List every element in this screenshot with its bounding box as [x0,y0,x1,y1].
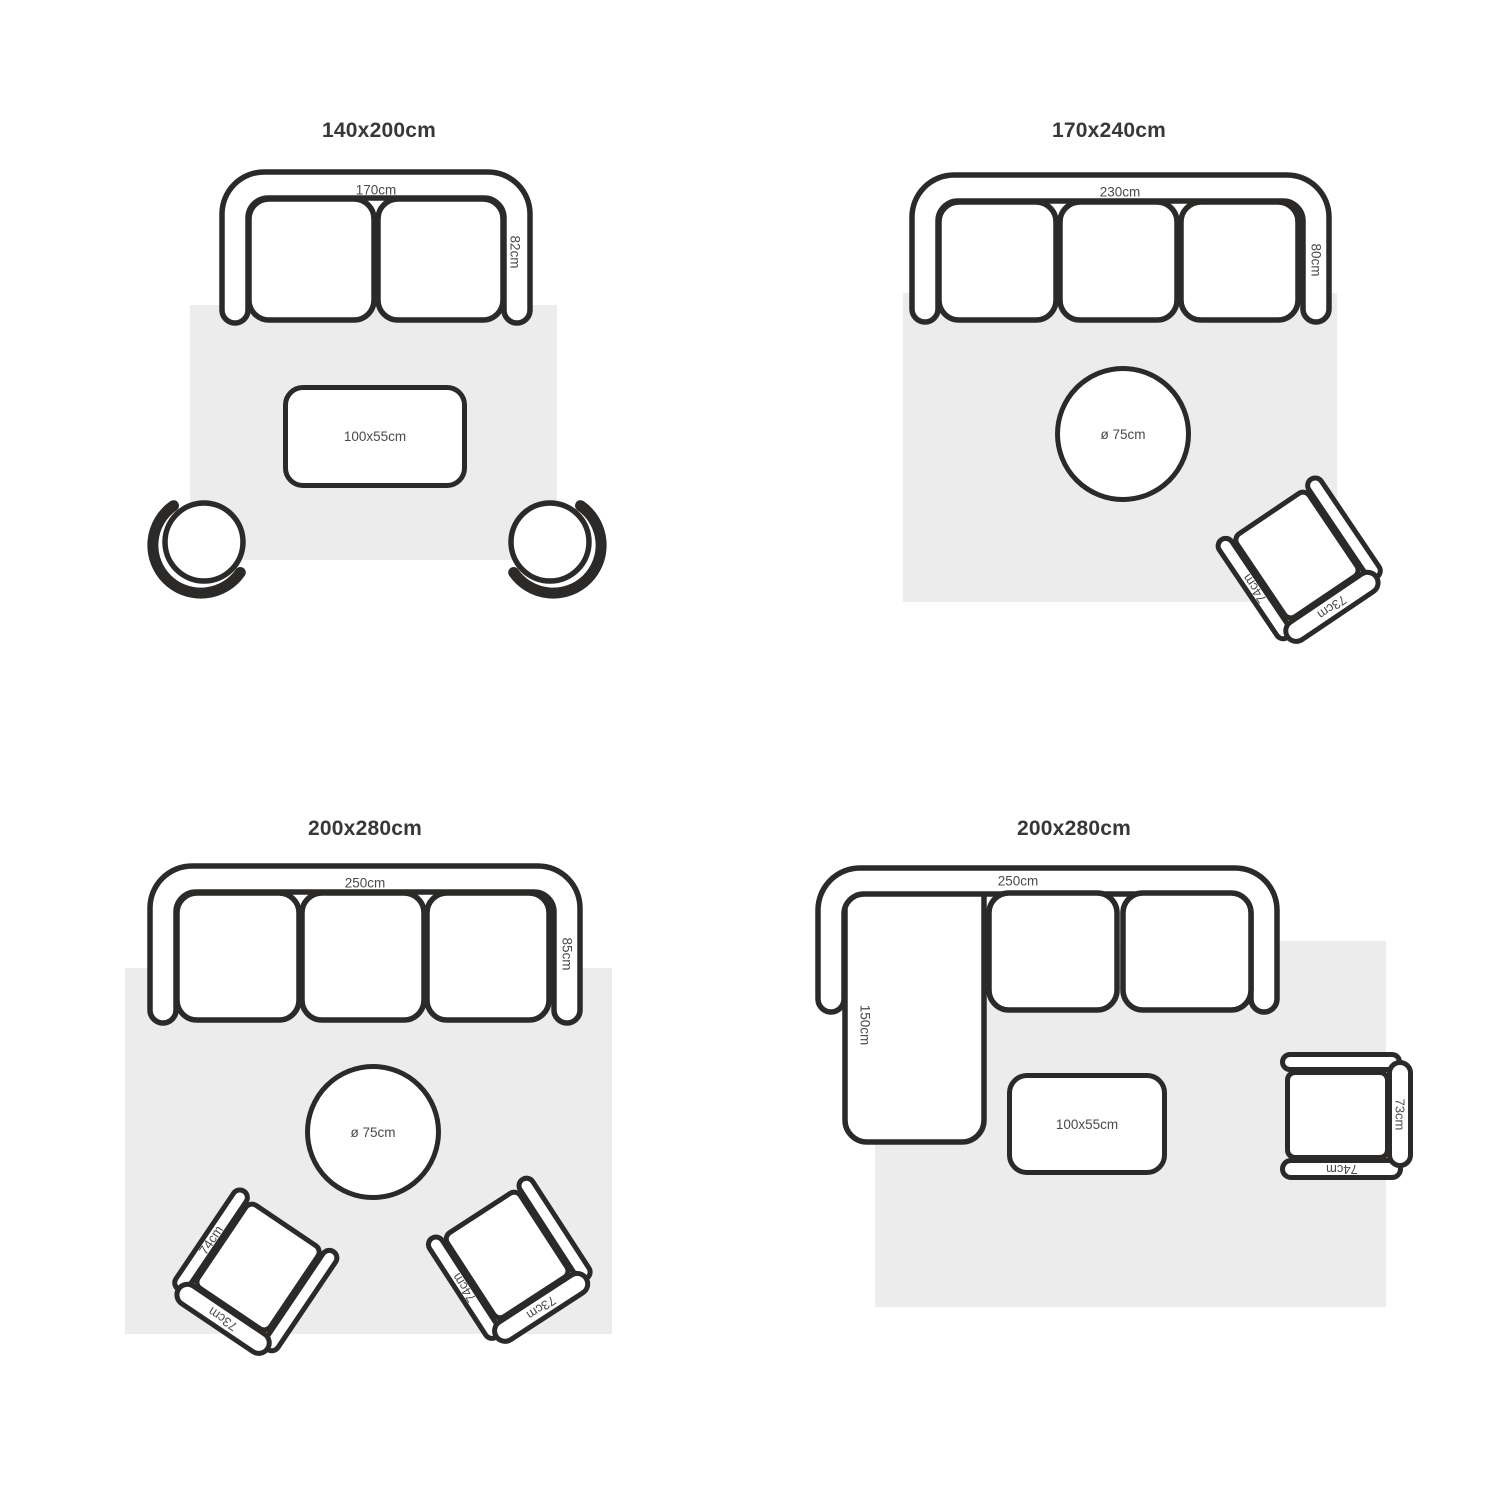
armchair-backrest: 73cm [1387,1060,1413,1168]
layout-title: 200x280cm [308,817,422,841]
sofa-cushion [378,199,503,320]
armchair-armrest [1280,1052,1402,1072]
chair-seat [165,503,243,581]
coffee-table: 100x55cm [1007,1073,1167,1175]
sofa-width-label: 230cm [1100,185,1141,200]
sofa-cushion [177,893,299,1020]
sofa-depth-label: 85cm [560,937,575,970]
chaise-depth-label: 150cm [858,1005,873,1046]
layout-title: 140x200cm [322,119,436,143]
armchair-armrest: 74cm [1280,1158,1403,1180]
sofa-cushion [302,893,424,1020]
table-size-label: ø 75cm [350,1125,395,1140]
sofa-width-label: 250cm [345,876,386,891]
layout-title: 170x240cm [1052,119,1166,143]
sofa-cushion [989,893,1117,1010]
round-table: ø 75cm [305,1064,441,1200]
sofa-width-label: 170cm [356,183,397,198]
table-size-label: ø 75cm [1100,427,1145,442]
sofa-cushion [1181,202,1298,320]
table-size-label: 100x55cm [344,429,406,444]
layout-title: 200x280cm [1017,817,1131,841]
round-chair [494,487,610,603]
round-table: ø 75cm [1055,366,1191,502]
table-size-label: 100x55cm [1056,1117,1118,1132]
sofa-cushion [939,202,1056,320]
rug-size-guide-diagram: 140x200cm 170cm 82cm 100x55cm 170x240cm [0,0,1500,1500]
sofa-width-label: 250cm [998,874,1039,889]
sofa-cushion [249,199,374,320]
backrest-size-label: 73cm [1393,1098,1408,1130]
sofa-cushion [427,893,549,1020]
sofa-depth-label: 80cm [1309,243,1324,276]
armchair: 74cm 73cm [1280,1052,1413,1180]
coffee-table: 100x55cm [283,385,467,488]
sofa-cushion [1123,893,1251,1010]
chair-seat [511,503,589,581]
armrest-size-label: 74cm [1326,1162,1358,1177]
armchair-seat [1285,1070,1390,1160]
round-chair [144,487,260,603]
sofa-depth-label: 82cm [508,235,523,268]
sofa-cushion [1060,202,1177,320]
